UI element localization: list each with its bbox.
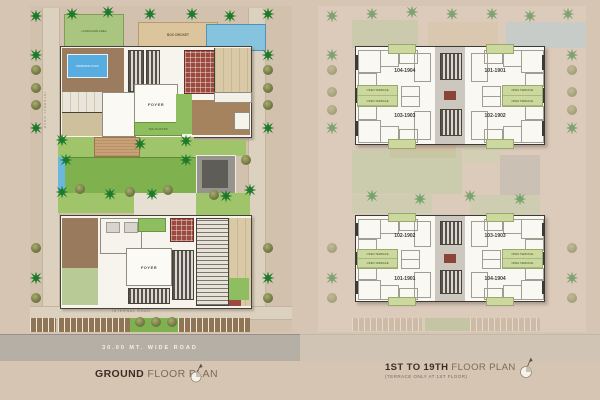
room-partition: [401, 86, 420, 97]
palm-tree-icon: [566, 272, 579, 285]
foyer-lower-label: FOYER: [141, 265, 157, 270]
balcony-rail: [355, 223, 358, 237]
room-partition: [525, 106, 544, 120]
round-tree-icon: [31, 83, 41, 93]
room-partition: [521, 50, 544, 73]
open-terrace-label: OPEN TERRACE: [503, 96, 542, 106]
parking-strip-2: [178, 318, 250, 332]
palm-tree-icon: [146, 188, 159, 201]
room-partition: [358, 268, 377, 280]
indoor-games-room: [62, 268, 98, 305]
room-partition: [482, 250, 501, 260]
open-terrace-tab: [388, 44, 416, 54]
room-partition: [358, 280, 381, 301]
lift-bank-lower: [172, 250, 194, 300]
typical-floor-plan-title: 1ST TO 19TH FLOOR PLAN (TERRACE ONLY AT …: [385, 362, 516, 379]
palm-tree-icon: [180, 154, 193, 167]
bed-mark-2: [124, 222, 138, 233]
kids-room: [62, 112, 104, 136]
core-lobby-mark: [444, 254, 455, 263]
unit-label: 101-1901: [467, 68, 523, 74]
palm-tree-icon: [262, 8, 275, 21]
walkway: [134, 193, 196, 215]
round-tree-icon: [263, 243, 273, 253]
seating-green: [194, 140, 246, 156]
compass-icon: [188, 362, 206, 384]
palm-tree-icon: [446, 8, 459, 21]
swimming-pool: SWIMMING POOL: [67, 54, 108, 78]
open-terrace-tab: [388, 139, 416, 149]
kids-green-pocket: [229, 278, 249, 300]
landscape-area: LANDSCAPE AREA: [64, 14, 124, 47]
round-tree-icon: [31, 100, 41, 110]
round-tree-icon: [567, 293, 577, 303]
store-room: [234, 112, 250, 130]
round-tree-icon: [75, 184, 85, 194]
green-pocket: [176, 94, 192, 134]
palm-tree-icon: [30, 272, 43, 285]
palm-tree-icon: [566, 49, 579, 62]
palm-tree-icon: [524, 10, 537, 23]
palm-tree-icon: [60, 154, 73, 167]
tower-block-south: OPEN TERRACE OPEN TERRACE OPEN TERRACE O…: [355, 215, 545, 302]
balcony-rail: [542, 55, 545, 71]
balcony-rail: [355, 281, 358, 295]
library-room: [62, 218, 98, 268]
balcony-rail: [355, 121, 358, 137]
typical-floor-plan-subtitle: (TERRACE ONLY AT 1ST FLOOR): [385, 374, 516, 379]
palm-tree-icon: [102, 6, 115, 19]
round-tree-icon: [151, 317, 161, 327]
internal-road-label: INTERNAL ROAD: [112, 309, 151, 313]
palm-tree-icon: [326, 10, 339, 23]
open-terrace-label: OPEN TERRACE: [503, 259, 542, 268]
palm-tree-icon: [30, 49, 43, 62]
unit-label: 103-1903: [467, 233, 523, 239]
faded-parking-1: [352, 318, 422, 331]
open-terrace-mid-right: OPEN TERRACE OPEN TERRACE: [502, 249, 543, 269]
room-partition: [521, 120, 544, 143]
box-cricket-label: BOX CRICKET: [167, 33, 189, 37]
unit-label: 103-1903: [377, 113, 433, 119]
palm-tree-icon: [366, 190, 379, 203]
service-rooms: [62, 92, 102, 112]
palm-tree-icon: [186, 8, 199, 21]
palm-tree-icon: [406, 6, 419, 19]
palm-tree-icon: [486, 8, 499, 21]
bed-mark-1: [106, 222, 120, 233]
green-strip-bottom-block: [138, 218, 166, 232]
balcony-rail: [542, 223, 545, 237]
faded-lawn: [352, 150, 462, 194]
room-partition: [358, 120, 381, 143]
open-terrace-mid-left: OPEN TERRACE OPEN TERRACE: [357, 249, 398, 269]
parking-ramp: [196, 218, 230, 306]
foyer: FOYER: [134, 84, 178, 124]
lift-shaft-top: [440, 221, 463, 245]
round-tree-icon: [567, 87, 577, 97]
room-partition: [482, 86, 501, 97]
open-terrace-label: OPEN TERRACE: [503, 250, 542, 259]
lower-green-left: [58, 193, 134, 213]
palm-tree-icon: [134, 138, 147, 151]
open-terrace-label: OPEN TERRACE: [503, 86, 542, 96]
room-partition: [401, 96, 420, 107]
title-rest: FLOOR PLAN: [147, 368, 218, 380]
unit-label: 102-1902: [377, 233, 433, 239]
palm-tree-icon: [514, 193, 527, 206]
open-terrace-label: OPEN TERRACE: [358, 259, 397, 268]
unit-label: 101-1901: [377, 276, 433, 282]
palm-tree-icon: [464, 190, 477, 203]
games-room: [214, 92, 252, 103]
round-tree-icon: [31, 65, 41, 75]
faded-box-cricket: [428, 22, 498, 46]
open-terrace-label: OPEN TERRACE: [358, 96, 397, 106]
round-tree-icon: [327, 243, 337, 253]
room-partition: [482, 96, 501, 107]
round-tree-icon: [327, 105, 337, 115]
planter-label: THE PLANTER: [148, 127, 167, 131]
open-terrace-tab: [486, 213, 514, 222]
open-terrace-tab: [388, 297, 416, 306]
round-tree-icon: [567, 105, 577, 115]
room-partition: [521, 219, 544, 240]
internal-road-label-vertical: INTERNAL ROAD: [43, 92, 47, 129]
open-terrace-label: OPEN TERRACE: [358, 250, 397, 259]
room-partition: [401, 259, 420, 269]
room-partition: [525, 268, 544, 280]
plaza-inner: [202, 160, 228, 188]
compass-icon: [518, 356, 536, 380]
title-bold: GROUND: [95, 368, 144, 380]
entry-canopy: [229, 300, 241, 306]
lift-shaft-bottom: [440, 270, 463, 294]
site-plan-canvas: INTERNAL ROAD INTERNAL ROAD LANDSCAPE AR…: [0, 0, 600, 400]
main-road: 30.00 MT. WIDE ROAD: [0, 334, 300, 361]
play-deck: [94, 137, 140, 157]
palm-tree-icon: [326, 272, 339, 285]
round-tree-icon: [567, 243, 577, 253]
parking-strip-west: [30, 318, 56, 332]
lift-shaft-bottom: [440, 109, 463, 136]
foyer-lower: FOYER: [126, 248, 172, 286]
round-tree-icon: [263, 65, 273, 75]
lift-shaft-top: [440, 53, 463, 80]
round-tree-icon: [327, 65, 337, 75]
open-terrace-mid-left: OPEN TERRACE OPEN TERRACE: [357, 85, 398, 107]
guest-rooms: [214, 48, 251, 92]
planter-strip: THE PLANTER: [134, 122, 182, 136]
entrance-foyer: [102, 92, 136, 137]
round-tree-icon: [31, 243, 41, 253]
round-tree-icon: [327, 87, 337, 97]
room-partition: [521, 280, 544, 301]
core-lobby-mark: [444, 91, 455, 101]
balcony-rail: [542, 281, 545, 295]
palm-tree-icon: [262, 272, 275, 285]
room-partition: [358, 106, 377, 120]
title-rest: FLOOR PLAN: [451, 362, 515, 373]
palm-tree-icon: [244, 184, 257, 197]
round-tree-icon: [263, 83, 273, 93]
round-tree-icon: [135, 317, 145, 327]
faded-green-3: [470, 195, 540, 215]
unit-label: 104-1904: [467, 276, 523, 282]
palm-tree-icon: [144, 8, 157, 21]
palm-tree-icon: [180, 135, 193, 148]
mini-theatre: [184, 50, 216, 94]
faded-parking-2: [470, 318, 540, 331]
round-tree-icon: [163, 185, 173, 195]
palm-tree-icon: [224, 10, 237, 23]
round-tree-icon: [167, 317, 177, 327]
round-tree-icon: [567, 65, 577, 75]
palm-tree-icon: [66, 8, 79, 21]
palm-tree-icon: [56, 134, 69, 147]
round-tree-icon: [31, 293, 41, 303]
room-partition: [482, 259, 501, 269]
stair-lower: [128, 288, 170, 304]
round-tree-icon: [209, 190, 219, 200]
open-terrace-mid-right: OPEN TERRACE OPEN TERRACE: [502, 85, 543, 107]
main-road-label: 30.00 MT. WIDE ROAD: [102, 345, 198, 351]
open-terrace-tab: [486, 44, 514, 54]
open-terrace-tab: [486, 139, 514, 149]
faded-pool: [506, 22, 586, 48]
parking-strip-1: [58, 318, 130, 332]
palm-tree-icon: [326, 49, 339, 62]
palm-tree-icon: [30, 122, 43, 135]
palm-tree-icon: [566, 122, 579, 135]
palm-tree-icon: [414, 193, 427, 206]
round-tree-icon: [327, 293, 337, 303]
palm-tree-icon: [262, 49, 275, 62]
open-terrace-tab: [486, 297, 514, 306]
av-room: [170, 218, 194, 242]
balcony-rail: [355, 55, 358, 71]
round-tree-icon: [241, 155, 251, 165]
balcony-rail: [542, 121, 545, 137]
swimming-pool-label: SWIMMING POOL: [76, 64, 99, 68]
palm-tree-icon: [56, 186, 69, 199]
round-tree-icon: [263, 100, 273, 110]
tower-block-north: OPEN TERRACE OPEN TERRACE OPEN TERRACE O…: [355, 46, 545, 145]
open-terrace-tab: [388, 213, 416, 222]
palm-tree-icon: [562, 8, 575, 21]
faded-plaza: [500, 155, 540, 195]
palm-tree-icon: [326, 122, 339, 135]
palm-tree-icon: [104, 188, 117, 201]
round-tree-icon: [263, 293, 273, 303]
palm-tree-icon: [220, 190, 233, 203]
unit-label: 102-1902: [467, 113, 523, 119]
room-partition: [401, 250, 420, 260]
unit-label: 104-1904: [377, 68, 433, 74]
title-bold: 1ST TO 19TH: [385, 362, 448, 373]
landscape-label: LANDSCAPE AREA: [81, 29, 106, 33]
palm-tree-icon: [262, 122, 275, 135]
faded-hedge: [425, 318, 470, 331]
palm-tree-icon: [366, 8, 379, 21]
foyer-label: FOYER: [148, 102, 164, 107]
round-tree-icon: [125, 187, 135, 197]
palm-tree-icon: [30, 10, 43, 23]
open-terrace-label: OPEN TERRACE: [358, 86, 397, 96]
